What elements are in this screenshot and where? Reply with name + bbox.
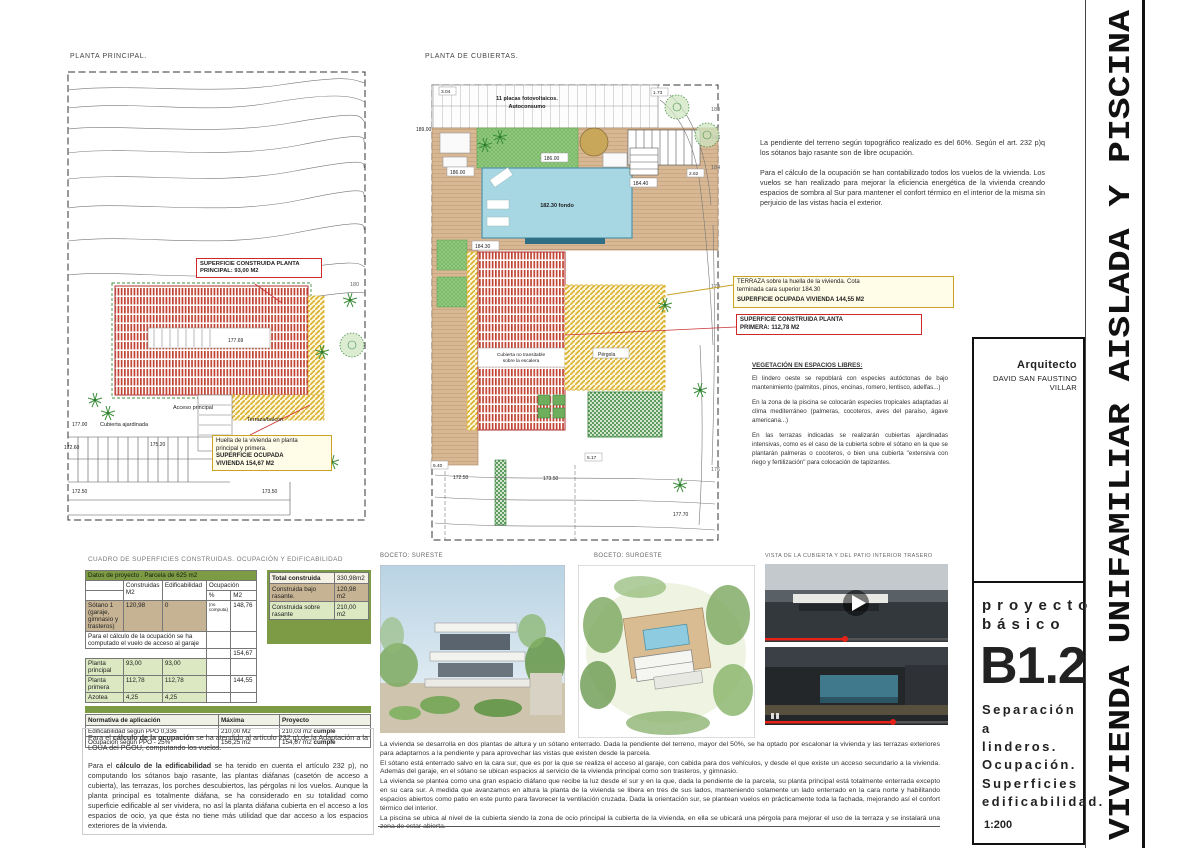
boceto1-label: BOCETO: SURESTE bbox=[380, 553, 443, 559]
label-line: principal y primera. bbox=[216, 446, 328, 454]
cell-total-value: 330,98m2 bbox=[334, 573, 368, 584]
video-progress-handle bbox=[842, 636, 848, 642]
plan1-level-17260: 172.60 bbox=[64, 445, 80, 451]
plan2-level-17770: 177.70 bbox=[673, 512, 689, 518]
label-line: SUPERFICIE OCUPADA bbox=[216, 453, 328, 461]
row-ocup-total: 154,67 bbox=[86, 649, 257, 659]
cell-construidas: 112,78 bbox=[123, 676, 162, 693]
row-principal: Planta principal 93,00 93,00 bbox=[86, 659, 257, 676]
summary-spacer bbox=[269, 620, 369, 642]
plan2-level-deck-18600: 186.00 bbox=[450, 170, 466, 176]
boceto-sureste-sketch bbox=[380, 565, 565, 733]
cell-total-label: Total construida bbox=[270, 573, 335, 584]
description-p3: La vivienda se plantea como una gran esp… bbox=[380, 778, 940, 813]
vegetation-title: VEGETACIÓN EN ESPACIOS LIBRES: bbox=[752, 362, 948, 371]
plan2-pool-depth-label: 182.30 fondo bbox=[540, 203, 574, 209]
plan2-dim-517: 5.17 bbox=[587, 455, 597, 461]
bottom-rule bbox=[378, 826, 940, 827]
cell-label: Sótano 1 (garaje, gimnasio y trasteros) bbox=[86, 601, 124, 632]
video-control-icon bbox=[771, 713, 774, 719]
regulation-note-p1: Para el cálculo de la ocupación se ha at… bbox=[88, 733, 368, 753]
plan1-superficie-construida-box: SUPERFICIE CONSTRUIDA PLANTA PRINCIPAL: … bbox=[196, 258, 322, 278]
plan2-placas-label-1: 11 placas fotovoltaicos. bbox=[496, 96, 558, 102]
label-line: PRINCIPAL: 93,00 M2 bbox=[200, 268, 318, 275]
plan1-contour-label-180: 180 bbox=[350, 282, 359, 288]
plan2-roof-building: Cubierta no transitable sobre la escaler… bbox=[467, 252, 665, 525]
plan2-dim-173: 1.73 bbox=[653, 90, 663, 96]
plan2-contour-188: 188 bbox=[711, 107, 720, 113]
col-edificabilidad: Edificabilidad bbox=[162, 581, 206, 601]
cell-edificabilidad: 112,78 bbox=[162, 676, 206, 693]
label-line: TERRAZA sobre la huella de la vivienda. … bbox=[737, 279, 950, 287]
row-azotea: Azotea 4,25 4,25 bbox=[86, 693, 257, 703]
label-line: SUPERFICIE OCUPADA VIVIENDA 144,55 M2 bbox=[737, 297, 950, 305]
surfaces-table: Datos de proyecto . Parcela de 625 m2 Co… bbox=[85, 570, 371, 748]
plan2-dim-262: 2.62 bbox=[689, 171, 699, 177]
drawing-scale: 1:200 bbox=[984, 819, 1012, 831]
label-line: PRIMERA: 112,78 M2 bbox=[740, 325, 918, 333]
vista-video-frame-1 bbox=[765, 564, 948, 642]
cell-sobre-value: 210,00 m2 bbox=[334, 602, 368, 620]
label-line: terminada cara superior 184.30 bbox=[737, 287, 950, 295]
plan2-cubierta-escalera-label-1: Cubierta no transitable bbox=[497, 352, 546, 358]
video-progress-bar bbox=[765, 638, 845, 641]
vegetation-p1: El lindero oeste se repoblará con especi… bbox=[752, 375, 948, 393]
cell-normativa-label: Normativa de aplicación bbox=[86, 715, 219, 726]
normativa-band bbox=[85, 706, 371, 713]
project-word-1: proyecto bbox=[982, 597, 1077, 616]
project-word-2: básico bbox=[982, 616, 1077, 635]
slope-notes: La pendiente del terreno según topográfi… bbox=[760, 138, 1045, 208]
cell-sobre-label: Construida sobre rasante bbox=[270, 602, 335, 620]
cell-proyecto: Proyecto bbox=[280, 715, 371, 726]
video-progress-handle bbox=[890, 719, 896, 725]
cell-construidas: 93,00 bbox=[123, 659, 162, 676]
plan2-level-17350: 173.50 bbox=[543, 476, 559, 482]
cell-bajo-value: 120,98 m2 bbox=[334, 584, 368, 602]
plan2-dim-540: 5.40 bbox=[433, 463, 443, 469]
plan2-cubierta-escalera-label-2: sobre la escalera bbox=[503, 358, 540, 364]
subtitle-line: linderos. bbox=[982, 738, 1077, 756]
plan2-title: PLANTA DE CUBIERTAS. bbox=[425, 53, 518, 60]
regulation-note-p2: Para el cálculo de la edificabilidad se … bbox=[88, 761, 368, 831]
subtitle-line: Separación a bbox=[982, 701, 1077, 738]
col-label: M2 bbox=[126, 589, 135, 596]
cell-edificabilidad: 0 bbox=[162, 601, 206, 632]
architect-label: Arquitecto bbox=[974, 359, 1077, 371]
description-p1: La vivienda se desarrolla en dos plantas… bbox=[380, 741, 940, 759]
col-m2: M2 bbox=[231, 591, 257, 601]
description-p4: La piscina se ubica al nivel de la cubie… bbox=[380, 815, 940, 833]
plan2-dim-304: 3.04 bbox=[441, 89, 451, 95]
architect-name: DAVID SAN FAUSTINO VILLAR bbox=[974, 374, 1077, 392]
plan1-label-acceso: Acceso principal bbox=[173, 405, 213, 411]
plan2-contour-176: 176 bbox=[711, 467, 720, 473]
plan2-level-18900: 189.00 bbox=[416, 127, 432, 133]
col-label: Construidas bbox=[126, 582, 160, 589]
row-sobre-rasante: Construida sobre rasante 210,00 m2 bbox=[270, 602, 369, 620]
row-total: Total construida 330,98m2 bbox=[270, 573, 369, 584]
boceto2-label: BOCETO: SUROESTE bbox=[594, 553, 662, 559]
row-bajo-rasante: Construida bajo rasante. 120,98 m2 bbox=[270, 584, 369, 602]
video-progress-bar bbox=[765, 721, 893, 724]
col-ocupacion: Ocupación bbox=[206, 581, 256, 591]
label-line: Huella de la vivienda en planta bbox=[216, 438, 328, 446]
cell-ocup-m2: 144,55 bbox=[231, 676, 257, 693]
cell-ocup-m2: 148,76 bbox=[231, 601, 257, 632]
sheet-code: B1.2 bbox=[980, 639, 1077, 694]
vista-video-frame-2 bbox=[765, 647, 948, 725]
cell-label: Azotea bbox=[86, 693, 124, 703]
video-control-icon bbox=[776, 713, 779, 719]
text: Para el bbox=[88, 733, 113, 742]
vegetation-p2: En la zona de la piscina se colocarán es… bbox=[752, 399, 948, 426]
cell-edificabilidad: 4,25 bbox=[162, 693, 206, 703]
cell-ocup-total: 154,67 bbox=[231, 649, 257, 659]
label-line: SUPERFICIE CONSTRUIDA PLANTA bbox=[200, 261, 318, 268]
cell-maxima: Máxima bbox=[219, 715, 280, 726]
vegetation-p3: En las terrazas indicadas se realizarán … bbox=[752, 432, 948, 468]
cell-label: Planta principal bbox=[86, 659, 124, 676]
vista-label: VISTA DE LA CUBIERTA Y DEL PATIO INTERIO… bbox=[765, 553, 948, 559]
cell-construidas: 120,98 bbox=[123, 601, 162, 632]
plan1-level-17250: 172.50 bbox=[72, 489, 88, 495]
plan1-building-footprint: 177.69 bbox=[112, 283, 311, 398]
plan2-pergola-label: Pérgola bbox=[598, 352, 615, 358]
boceto-suroeste-sketch bbox=[578, 565, 755, 738]
label-line: SUPERFICIE CONSTRUIDA PLANTA bbox=[740, 317, 918, 325]
surfaces-summary-table: Total construida 330,98m2 Construida baj… bbox=[267, 570, 371, 644]
drawing-sheet: PLANTA PRINCIPAL. 180 bbox=[0, 0, 1200, 848]
subtitle-line: Superficies bbox=[982, 775, 1077, 793]
cuadro-title: CUADRO DE SUPERFICIES CONSTRUIDAS. OCUPA… bbox=[88, 556, 343, 563]
plan2-level-18440: 184.40 bbox=[633, 181, 649, 187]
plan1-level-17520: 175.20 bbox=[150, 442, 166, 448]
plan2-level-17250: 172.50 bbox=[453, 475, 469, 481]
plan2-level-grass-18600: 186.00 bbox=[544, 156, 560, 162]
description-notes: La vivienda se desarrolla en dos plantas… bbox=[380, 741, 940, 832]
cell-nota: Para el cálculo de la ocupación se ha co… bbox=[86, 632, 207, 649]
text: Para el bbox=[88, 761, 116, 770]
cell-label: Planta primera bbox=[86, 676, 124, 693]
text-bold: cálculo de la edificabilidad bbox=[116, 761, 211, 770]
label-line: VIVIENDA 154,67 M2 bbox=[216, 461, 328, 469]
col-construidas: Construidas M2 bbox=[123, 581, 162, 601]
table-header: Datos de proyecto . Parcela de 625 m2 bbox=[86, 571, 257, 581]
plan1-label-cubierta-ajardinada: Cubierta ajardinada bbox=[100, 422, 149, 428]
subtitle-line: Ocupación. bbox=[982, 756, 1077, 774]
plan2-contour-184: 184 bbox=[711, 165, 720, 171]
text: se ha tenido en cuenta el artículo 232 p… bbox=[88, 761, 368, 830]
architect-panel: Arquitecto DAVID SAN FAUSTINO VILLAR bbox=[972, 337, 1085, 583]
slope-note-p1: La pendiente del terreno según topográfi… bbox=[760, 138, 1045, 158]
cell-edificabilidad: 93,00 bbox=[162, 659, 206, 676]
project-panel: proyecto básico B1.2 Separación a linder… bbox=[972, 583, 1085, 845]
plan1-level-17350: 173.50 bbox=[262, 489, 278, 495]
plan1-title: PLANTA PRINCIPAL. bbox=[70, 53, 147, 60]
surfaces-main-table: Datos de proyecto . Parcela de 625 m2 Co… bbox=[85, 570, 257, 703]
row-sotano: Sótano 1 (garaje, gimnasio y trasteros) … bbox=[86, 601, 257, 632]
sheet-vertical-title: VIVIENDA UNIFAMILIAR AISLADA Y PISCINA bbox=[1104, 10, 1139, 840]
cell-bajo-label: Construida bajo rasante. bbox=[270, 584, 335, 602]
plan2-pool: 182.30 fondo bbox=[482, 167, 632, 244]
cell-construidas: 4,25 bbox=[123, 693, 162, 703]
description-p2: El sótano está enterrado salvo en la car… bbox=[380, 760, 940, 778]
regulation-notes: Para el cálculo de la ocupación se ha at… bbox=[82, 728, 374, 835]
plan1-huella-box: Huella de la vivienda en planta principa… bbox=[212, 435, 332, 471]
row-primera: Planta primera 112,78 112,78 144,55 bbox=[86, 676, 257, 693]
plan1-level-17700: 177.00 bbox=[72, 422, 88, 428]
subtitle-line: edificabilidad. bbox=[982, 793, 1077, 811]
cell-ocup-pct: (no computa) bbox=[206, 601, 230, 632]
plan1-level-17769: 177.69 bbox=[228, 338, 244, 344]
col-pct: % bbox=[206, 591, 230, 601]
vegetation-notes: VEGETACIÓN EN ESPACIOS LIBRES: El linder… bbox=[752, 362, 948, 468]
text-bold: cálculo de la ocupación bbox=[113, 733, 194, 742]
plan2-level-18430: 184.30 bbox=[475, 244, 491, 250]
plan1-label-terraza: Terraza/balcón bbox=[247, 417, 283, 423]
plan2-terraza-box: TERRAZA sobre la huella de la vivienda. … bbox=[733, 276, 954, 308]
plan2-placas-label-2: Autoconsumo bbox=[509, 104, 547, 110]
plan2-solar-panels: 11 placas fotovoltaicos. Autoconsumo 3.0… bbox=[432, 85, 668, 128]
normativa-header-row: Normativa de aplicación Máxima Proyecto bbox=[86, 715, 371, 726]
plan2-superficie-primera-box: SUPERFICIE CONSTRUIDA PLANTA PRIMERA: 11… bbox=[736, 314, 922, 335]
row-nota: Para el cálculo de la ocupación se ha co… bbox=[86, 632, 257, 649]
slope-note-p2: Para el cálculo de la ocupación se han c… bbox=[760, 168, 1045, 208]
sheet-vertical-title-band: VIVIENDA UNIFAMILIAR AISLADA Y PISCINA bbox=[1085, 0, 1145, 848]
